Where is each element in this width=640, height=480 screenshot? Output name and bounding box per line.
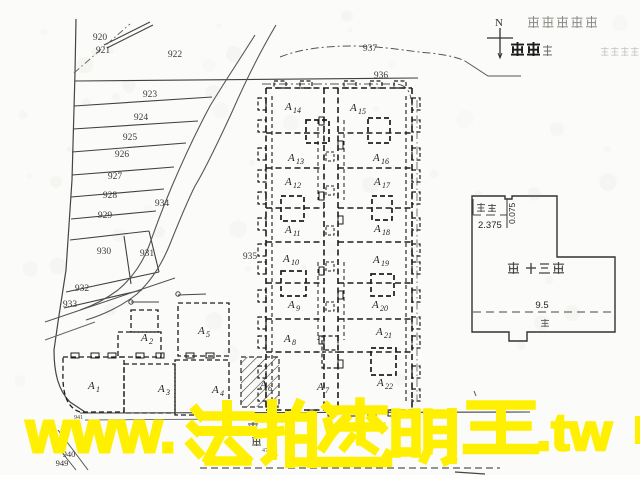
svg-text:13: 13: [296, 157, 304, 166]
svg-text:936: 936: [374, 71, 389, 81]
svg-text:A: A: [372, 152, 380, 164]
svg-text:9.5: 9.5: [535, 300, 548, 311]
svg-text:A: A: [287, 299, 295, 311]
svg-text:1: 1: [96, 385, 100, 394]
svg-text:0.075: 0.075: [507, 202, 517, 224]
svg-text:935: 935: [243, 252, 258, 262]
svg-text:A: A: [140, 332, 148, 344]
svg-text:A: A: [375, 326, 383, 338]
svg-text:A: A: [284, 101, 292, 113]
svg-text:A: A: [87, 380, 95, 392]
svg-text:A: A: [284, 176, 292, 188]
svg-text:www.: www.: [25, 400, 176, 465]
svg-text:937: 937: [363, 44, 378, 54]
svg-text:A: A: [371, 299, 379, 311]
svg-text:12: 12: [293, 181, 301, 190]
svg-text:928: 928: [103, 191, 118, 201]
svg-text:923: 923: [143, 90, 158, 100]
svg-text:8: 8: [292, 338, 296, 347]
svg-text:922: 922: [168, 50, 183, 60]
svg-text:925: 925: [123, 133, 138, 143]
svg-text:17: 17: [382, 181, 391, 190]
svg-text:A: A: [284, 224, 292, 236]
svg-text:10: 10: [291, 258, 299, 267]
svg-text:9: 9: [296, 304, 300, 313]
svg-text:929: 929: [98, 211, 113, 221]
svg-text:11: 11: [293, 229, 300, 238]
svg-text:21: 21: [384, 331, 392, 340]
svg-text:A: A: [211, 384, 219, 396]
svg-text:20: 20: [380, 304, 388, 313]
svg-text:931: 931: [140, 249, 155, 259]
svg-text:924: 924: [134, 113, 149, 123]
svg-text:930: 930: [97, 247, 112, 257]
svg-text:A: A: [157, 383, 165, 395]
svg-text:A: A: [287, 152, 295, 164]
svg-text:18: 18: [382, 228, 390, 237]
svg-text:932: 932: [75, 284, 90, 294]
svg-text:N: N: [495, 17, 503, 29]
svg-text:A: A: [372, 254, 380, 266]
svg-text:14: 14: [293, 106, 301, 115]
svg-text:16: 16: [381, 157, 389, 166]
svg-text:A: A: [373, 223, 381, 235]
svg-text:.tw: .tw: [536, 404, 613, 462]
svg-text:A: A: [283, 333, 291, 345]
svg-text:A: A: [197, 325, 205, 337]
svg-text:A: A: [349, 102, 357, 114]
svg-text:6: 6: [268, 384, 272, 393]
svg-text:A: A: [316, 381, 324, 393]
svg-text:934: 934: [155, 199, 170, 209]
svg-text:22: 22: [385, 382, 393, 391]
svg-text:920: 920: [93, 33, 108, 43]
svg-text:2.375: 2.375: [478, 220, 502, 231]
svg-text:3: 3: [165, 388, 170, 397]
svg-text:5: 5: [206, 330, 210, 339]
svg-text:927: 927: [108, 172, 123, 182]
svg-text:933: 933: [63, 300, 78, 310]
svg-text:15: 15: [358, 107, 366, 116]
svg-text:A: A: [282, 253, 290, 265]
svg-text:A: A: [376, 377, 384, 389]
svg-text:2: 2: [149, 337, 153, 346]
svg-text:19: 19: [381, 259, 389, 268]
svg-text:4: 4: [220, 389, 224, 398]
svg-text:926: 926: [115, 150, 130, 160]
